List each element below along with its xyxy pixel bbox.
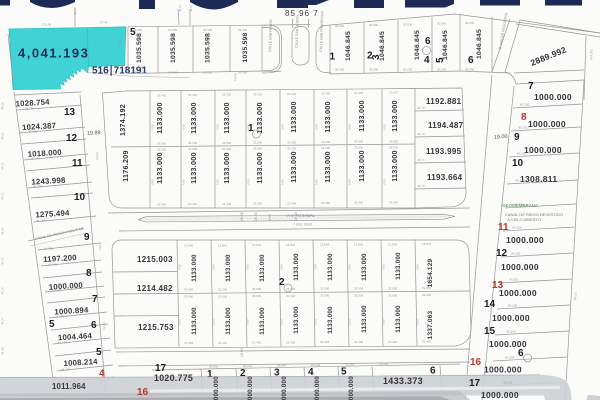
svg-text:8: 8 [521, 112, 527, 123]
svg-text:23.431: 23.431 [188, 93, 198, 97]
svg-text:6: 6 [425, 36, 431, 47]
svg-text:30.000: 30.000 [465, 21, 475, 25]
svg-text:1000.000: 1000.000 [534, 92, 572, 102]
svg-text:10: 10 [512, 158, 524, 169]
svg-text:44.26: 44.26 [1, 287, 5, 295]
svg-text:1133.000: 1133.000 [293, 306, 300, 334]
svg-text:8.00: 8.00 [268, 214, 272, 221]
svg-text:10: 10 [74, 192, 86, 203]
svg-text:23.490: 23.490 [184, 341, 194, 345]
svg-text:A.V. AV.SABAL: A.V. AV.SABAL [287, 213, 316, 218]
svg-text:33.000: 33.000 [157, 148, 167, 152]
svg-text:6.06: 6.06 [280, 319, 284, 325]
svg-text:80.201: 80.201 [504, 381, 514, 385]
svg-text:1000.000: 1000.000 [481, 390, 519, 400]
svg-text:1020.775: 1020.775 [154, 373, 193, 383]
svg-text:1000.000: 1000.000 [501, 262, 539, 272]
svg-text:6.06: 6.06 [280, 264, 284, 270]
svg-text:33.000: 33.000 [252, 294, 262, 298]
svg-text:44.292: 44.292 [31, 157, 41, 161]
svg-text:23.493: 23.493 [286, 340, 296, 344]
svg-text:5: 5 [49, 319, 55, 330]
svg-text:6.06: 6.06 [348, 124, 352, 130]
svg-text:29.000: 29.000 [238, 28, 248, 32]
svg-text:1337.063: 1337.063 [427, 310, 434, 339]
svg-text:80.204: 80.204 [514, 203, 524, 207]
svg-text:1133.000: 1133.000 [189, 102, 198, 134]
svg-text:23.496: 23.496 [388, 340, 398, 344]
svg-text:80.20: 80.20 [573, 292, 578, 300]
svg-text:29.000: 29.000 [203, 28, 213, 32]
svg-text:23.436: 23.436 [354, 91, 364, 95]
svg-text:1214.482: 1214.482 [137, 284, 173, 293]
svg-text:1133.000: 1133.000 [222, 152, 231, 184]
svg-text:6.06: 6.06 [182, 179, 186, 185]
svg-text:33.000: 33.000 [422, 293, 432, 297]
svg-text:6: 6 [91, 320, 97, 331]
svg-text:1133.000: 1133.000 [289, 151, 298, 183]
svg-text:29.044: 29.044 [345, 363, 355, 367]
svg-text:1000.000: 1000.000 [499, 288, 537, 298]
svg-text:1133.000: 1133.000 [225, 254, 232, 282]
svg-text:9: 9 [84, 232, 90, 243]
svg-text:13.846: 13.846 [388, 242, 398, 246]
svg-text:33.000: 33.000 [389, 145, 399, 149]
svg-text:44.295: 44.295 [44, 247, 54, 251]
svg-text:33.000: 33.000 [252, 287, 262, 291]
svg-text:29.043: 29.043 [311, 363, 321, 367]
svg-text:6: 6 [518, 348, 524, 359]
svg-text:1000.000: 1000.000 [492, 313, 530, 323]
svg-text:33.000: 33.000 [188, 141, 198, 145]
svg-text:4,041.193: 4,041.193 [18, 46, 89, 61]
svg-text:6.06: 6.06 [151, 179, 155, 185]
svg-text:1192.881: 1192.881 [426, 97, 462, 106]
svg-text:30.000: 30.000 [437, 22, 447, 26]
svg-text:1046.845: 1046.845 [345, 31, 352, 61]
svg-text:16.00: 16.00 [254, 212, 258, 221]
svg-text:97.87: 97.87 [9, 42, 14, 50]
svg-text:6: 6 [430, 366, 436, 377]
svg-text:5: 5 [96, 347, 102, 358]
svg-text:13.843: 13.843 [286, 243, 296, 247]
svg-text:33.000: 33.000 [354, 287, 364, 291]
svg-text:80.203: 80.203 [516, 179, 526, 183]
svg-text:1000.000: 1000.000 [506, 235, 544, 245]
svg-text:13.844: 13.844 [320, 243, 330, 247]
svg-text:57.45: 57.45 [100, 21, 108, 25]
svg-text:13.840: 13.840 [184, 244, 194, 248]
svg-text:13.842: 13.842 [252, 243, 262, 247]
svg-text:80.202: 80.202 [517, 152, 527, 156]
svg-text:80.200: 80.200 [505, 356, 515, 360]
svg-text:6.06: 6.06 [246, 319, 250, 325]
svg-text:1035.598: 1035.598 [205, 33, 212, 63]
svg-text:44.291: 44.291 [28, 130, 38, 134]
svg-text:6.06: 6.06 [382, 319, 386, 325]
svg-text:44.296: 44.296 [48, 263, 58, 267]
svg-text:19.89: 19.89 [87, 130, 101, 137]
svg-text:23.94: 23.94 [73, 7, 77, 15]
svg-text:19.00: 19.00 [95, 152, 100, 160]
svg-text:1000.000: 1000.000 [484, 365, 522, 375]
svg-text:23.430: 23.430 [157, 94, 167, 98]
svg-text:29.041: 29.041 [243, 364, 253, 368]
svg-text:1193.995: 1193.995 [426, 147, 462, 156]
svg-text:33.000: 33.000 [354, 140, 364, 144]
svg-text:1000.000: 1000.000 [213, 376, 220, 400]
svg-text:33.000: 33.000 [320, 294, 330, 298]
svg-text:29.000: 29.000 [168, 71, 178, 75]
svg-text:19.00: 19.00 [240, 348, 244, 357]
svg-text:23.435: 23.435 [321, 92, 331, 96]
svg-text:33.000: 33.000 [321, 140, 331, 144]
svg-text:29.000: 29.000 [133, 28, 143, 32]
svg-text:23.491: 23.491 [218, 341, 228, 345]
svg-text:1: 1 [330, 52, 336, 63]
svg-text:44.05: 44.05 [118, 39, 122, 47]
svg-text:214.243: 214.243 [589, 49, 594, 60]
svg-text:6.06: 6.06 [281, 179, 285, 185]
svg-text:44.25: 44.25 [1, 257, 5, 265]
svg-text:23.497: 23.497 [422, 340, 432, 344]
svg-text:6.06: 6.06 [151, 124, 155, 130]
svg-text:80.201: 80.201 [519, 126, 529, 130]
svg-text:33.000: 33.000 [184, 295, 194, 299]
svg-text:16: 16 [470, 357, 482, 368]
svg-text:40.00: 40.00 [240, 212, 244, 221]
svg-text:33.000: 33.000 [286, 294, 296, 298]
svg-text:1133.000: 1133.000 [293, 253, 300, 281]
svg-text:13.845: 13.845 [354, 243, 364, 247]
svg-text:33.000: 33.000 [354, 294, 364, 298]
svg-text:6.06: 6.06 [315, 179, 319, 185]
svg-text:30.000: 30.000 [335, 68, 345, 72]
svg-text:29.042: 29.042 [277, 364, 287, 368]
svg-text:6.06: 6.06 [416, 319, 420, 325]
svg-text:1133.000: 1133.000 [155, 152, 164, 184]
svg-text:30.000: 30.000 [403, 68, 413, 72]
svg-text:8: 8 [86, 268, 92, 279]
svg-text:33.000: 33.000 [388, 293, 398, 297]
svg-text:1133.000: 1133.000 [222, 102, 231, 134]
svg-text:23.492: 23.492 [222, 202, 232, 206]
svg-text:30.000: 30.000 [403, 22, 413, 26]
svg-text:1133.000: 1133.000 [225, 307, 232, 335]
svg-text:1374.192: 1374.192 [118, 104, 127, 136]
svg-text:80.205: 80.205 [513, 226, 523, 230]
svg-text:33.000: 33.000 [222, 147, 232, 151]
svg-text:1133.000: 1133.000 [357, 100, 366, 132]
svg-text:6.06: 6.06 [281, 124, 285, 130]
svg-text:1035.598: 1035.598 [136, 33, 143, 63]
svg-text:23.493: 23.493 [253, 202, 263, 206]
svg-text:6.06: 6.06 [216, 124, 220, 130]
svg-text:1046.845: 1046.845 [476, 29, 483, 59]
svg-text:6.06: 6.06 [416, 264, 420, 270]
svg-text:23.490: 23.490 [157, 203, 167, 207]
svg-text:30.000: 30.000 [369, 23, 379, 27]
svg-text:44.299: 44.299 [58, 341, 68, 345]
svg-text:1000.000: 1000.000 [247, 376, 254, 400]
svg-text:19.00: 19.00 [98, 242, 103, 250]
svg-text:1133.000: 1133.000 [259, 307, 266, 335]
svg-text:29.000: 29.000 [133, 71, 143, 75]
svg-text:23.494: 23.494 [287, 201, 297, 205]
svg-text:6.06: 6.06 [182, 124, 186, 130]
svg-text:23.492: 23.492 [252, 341, 262, 345]
svg-text:19.00: 19.00 [233, 73, 238, 81]
svg-text:44.294: 44.294 [36, 219, 46, 223]
svg-text:13.841: 13.841 [218, 243, 228, 247]
svg-text:80.200: 80.200 [520, 103, 530, 107]
svg-text:13.847: 13.847 [422, 242, 432, 246]
svg-text:29.040: 29.040 [209, 365, 219, 369]
svg-text:23.495: 23.495 [321, 201, 331, 205]
svg-text:1133.000: 1133.000 [395, 305, 402, 333]
svg-text:49.57: 49.57 [189, 4, 193, 12]
svg-text:1133.000: 1133.000 [390, 100, 399, 132]
svg-text:1433.373: 1433.373 [383, 376, 423, 386]
svg-text:80.207: 80.207 [510, 278, 520, 282]
svg-text:29.045: 29.045 [379, 362, 389, 366]
svg-text:6.06: 6.06 [383, 179, 387, 185]
svg-text:1308.811: 1308.811 [520, 174, 557, 184]
svg-text:45.73: 45.73 [417, 158, 425, 162]
svg-text:1046.845: 1046.845 [414, 30, 421, 60]
svg-text:6.06: 6.06 [383, 124, 387, 130]
svg-text:12: 12 [496, 248, 508, 259]
svg-text:33.000: 33.000 [388, 286, 398, 290]
svg-text:1176.209: 1176.209 [121, 150, 130, 182]
svg-text:13: 13 [64, 107, 76, 118]
svg-text:33.000: 33.000 [354, 146, 364, 150]
svg-text:19.00: 19.00 [494, 134, 508, 141]
svg-text:7: 7 [528, 81, 534, 92]
svg-text:6.06: 6.06 [348, 264, 352, 270]
svg-text:1193.664: 1193.664 [427, 173, 463, 182]
svg-text:7: 7 [92, 294, 98, 305]
svg-text:30.000: 30.000 [437, 68, 447, 72]
svg-text:1133.000: 1133.000 [323, 151, 332, 183]
svg-text:11: 11 [72, 158, 83, 169]
svg-text:6.06: 6.06 [247, 179, 251, 185]
svg-text:6.06: 6.06 [178, 264, 182, 270]
svg-text:1654.129: 1654.129 [427, 258, 434, 287]
svg-text:23.496: 23.496 [354, 201, 364, 205]
svg-text:23.437: 23.437 [389, 91, 399, 95]
svg-text:30.000: 30.000 [465, 68, 475, 72]
svg-text:136.96: 136.96 [42, 23, 52, 27]
svg-text:6.06: 6.06 [314, 264, 318, 270]
svg-text:1133.000: 1133.000 [255, 102, 264, 134]
svg-text:33.000: 33.000 [286, 287, 296, 291]
svg-text:23.433: 23.433 [253, 92, 263, 96]
svg-text:6.06: 6.06 [315, 124, 319, 130]
svg-text:6: 6 [468, 55, 474, 66]
svg-text:33.000: 33.000 [157, 142, 167, 146]
svg-text:1000.000: 1000.000 [524, 145, 562, 155]
svg-text:23.432: 23.432 [222, 93, 232, 97]
svg-text:1133.000: 1133.000 [189, 152, 198, 184]
svg-text:1000.000: 1000.000 [281, 376, 288, 400]
svg-text:15: 15 [484, 326, 496, 337]
svg-text:6.06: 6.06 [178, 319, 182, 325]
svg-text:1133.000: 1133.000 [255, 152, 264, 184]
svg-text:6.06: 6.06 [212, 264, 216, 270]
svg-text:1133.000: 1133.000 [323, 101, 332, 133]
svg-text:44.22: 44.22 [1, 162, 5, 170]
svg-text:44.297: 44.297 [52, 289, 62, 293]
svg-text:44.23: 44.23 [1, 192, 5, 200]
svg-text:44.290: 44.290 [61, 368, 71, 372]
svg-text:4: 4 [424, 55, 430, 66]
svg-text:1046.845: 1046.845 [442, 30, 449, 60]
svg-text:11: 11 [498, 222, 509, 233]
svg-text:1194.487: 1194.487 [428, 121, 464, 130]
svg-text:44.27: 44.27 [1, 317, 5, 325]
svg-text:1133.000: 1133.000 [361, 253, 368, 281]
svg-text:A CIELO ABIERTO: A CIELO ABIERTO [507, 217, 541, 222]
svg-text:1000.000: 1000.000 [528, 119, 566, 129]
svg-text:1133.000: 1133.000 [191, 307, 198, 335]
svg-text:44.298: 44.298 [55, 315, 65, 319]
svg-text:1133.000: 1133.000 [155, 102, 164, 134]
svg-text:1133.000: 1133.000 [191, 254, 198, 282]
svg-text:1133.000: 1133.000 [357, 150, 366, 182]
svg-text:1133.000: 1133.000 [395, 252, 402, 280]
svg-text:23.497: 23.497 [389, 200, 399, 204]
svg-text:45.73: 45.73 [417, 132, 425, 136]
svg-text:1133.000: 1133.000 [390, 150, 399, 182]
svg-text:1000.000: 1000.000 [348, 376, 355, 400]
svg-text:33.000: 33.000 [253, 141, 263, 145]
svg-text:44.24: 44.24 [1, 227, 5, 235]
svg-text:7 mts 1633: 7 mts 1633 [293, 223, 312, 227]
svg-text:1133.000: 1133.000 [289, 101, 298, 133]
svg-text:1035.598: 1035.598 [170, 33, 177, 63]
svg-text:5: 5 [435, 57, 446, 63]
svg-text:6.06: 6.06 [382, 264, 386, 270]
svg-text:44.290: 44.290 [25, 107, 35, 111]
svg-text:30.000: 30.000 [369, 68, 379, 72]
svg-text:33.000: 33.000 [184, 288, 194, 292]
svg-text:1215.753: 1215.753 [138, 323, 174, 332]
svg-text:17: 17 [469, 378, 481, 389]
svg-text:45.73: 45.73 [417, 184, 425, 188]
svg-text:33.000: 33.000 [422, 286, 432, 290]
svg-text:1133.000: 1133.000 [327, 306, 334, 334]
svg-text:16: 16 [137, 387, 149, 398]
svg-text:29.000: 29.000 [168, 28, 178, 32]
svg-text:9: 9 [514, 132, 520, 143]
svg-text:33.000: 33.000 [287, 146, 297, 150]
svg-text:45.73: 45.73 [417, 106, 425, 110]
svg-text:23.434: 23.434 [287, 92, 297, 96]
svg-text:33.000: 33.000 [222, 141, 232, 145]
svg-text:33.000: 33.000 [218, 294, 228, 298]
svg-text:23.491: 23.491 [188, 202, 198, 206]
svg-text:30.000: 30.000 [335, 24, 345, 28]
svg-text:1133.000: 1133.000 [259, 254, 266, 282]
svg-text:44.293: 44.293 [33, 185, 43, 189]
svg-text:33.000: 33.000 [321, 146, 331, 150]
svg-text:6.06: 6.06 [216, 179, 220, 185]
svg-text:80.209: 80.209 [507, 330, 517, 334]
svg-text:80.208: 80.208 [508, 304, 518, 308]
svg-text:6.06: 6.06 [246, 264, 250, 270]
svg-text:6.06: 6.06 [348, 319, 352, 325]
svg-text:44.21: 44.21 [1, 132, 5, 140]
svg-text:33.000: 33.000 [188, 147, 198, 151]
svg-text:1133.000: 1133.000 [361, 305, 368, 333]
svg-text:40.07: 40.07 [178, 4, 182, 12]
svg-text:3: 3 [371, 54, 382, 60]
svg-text:85 96 7: 85 96 7 [285, 9, 319, 18]
svg-text:1133.000: 1133.000 [327, 253, 334, 281]
svg-text:33.000: 33.000 [287, 140, 297, 144]
svg-text:29.000: 29.000 [238, 71, 248, 75]
svg-text:6.06: 6.06 [247, 124, 251, 130]
svg-text:23.494: 23.494 [320, 340, 330, 344]
svg-text:6.06: 6.06 [212, 319, 216, 325]
svg-text:23.495: 23.495 [354, 340, 364, 344]
svg-text:44.28: 44.28 [1, 347, 5, 355]
svg-text:6.06: 6.06 [348, 179, 352, 185]
svg-text:16.00: 16.00 [294, 212, 298, 221]
svg-text:1035.598: 1035.598 [242, 33, 249, 63]
svg-text:44.20: 44.20 [1, 102, 5, 110]
svg-text:33.000: 33.000 [253, 147, 263, 151]
svg-text:19.00: 19.00 [102, 322, 107, 330]
svg-text:12: 12 [66, 133, 78, 144]
svg-text:1215.003: 1215.003 [137, 255, 173, 264]
svg-text:1011.964: 1011.964 [52, 382, 86, 391]
svg-text:14: 14 [484, 299, 496, 310]
svg-text:80.206: 80.206 [511, 252, 521, 256]
svg-text:29.000: 29.000 [203, 71, 213, 75]
svg-text:1000.000: 1000.000 [314, 376, 321, 400]
svg-text:33.000: 33.000 [320, 287, 330, 291]
svg-text:33.000: 33.000 [389, 139, 399, 143]
svg-text:6.06: 6.06 [314, 319, 318, 325]
svg-text:33.000: 33.000 [218, 287, 228, 291]
